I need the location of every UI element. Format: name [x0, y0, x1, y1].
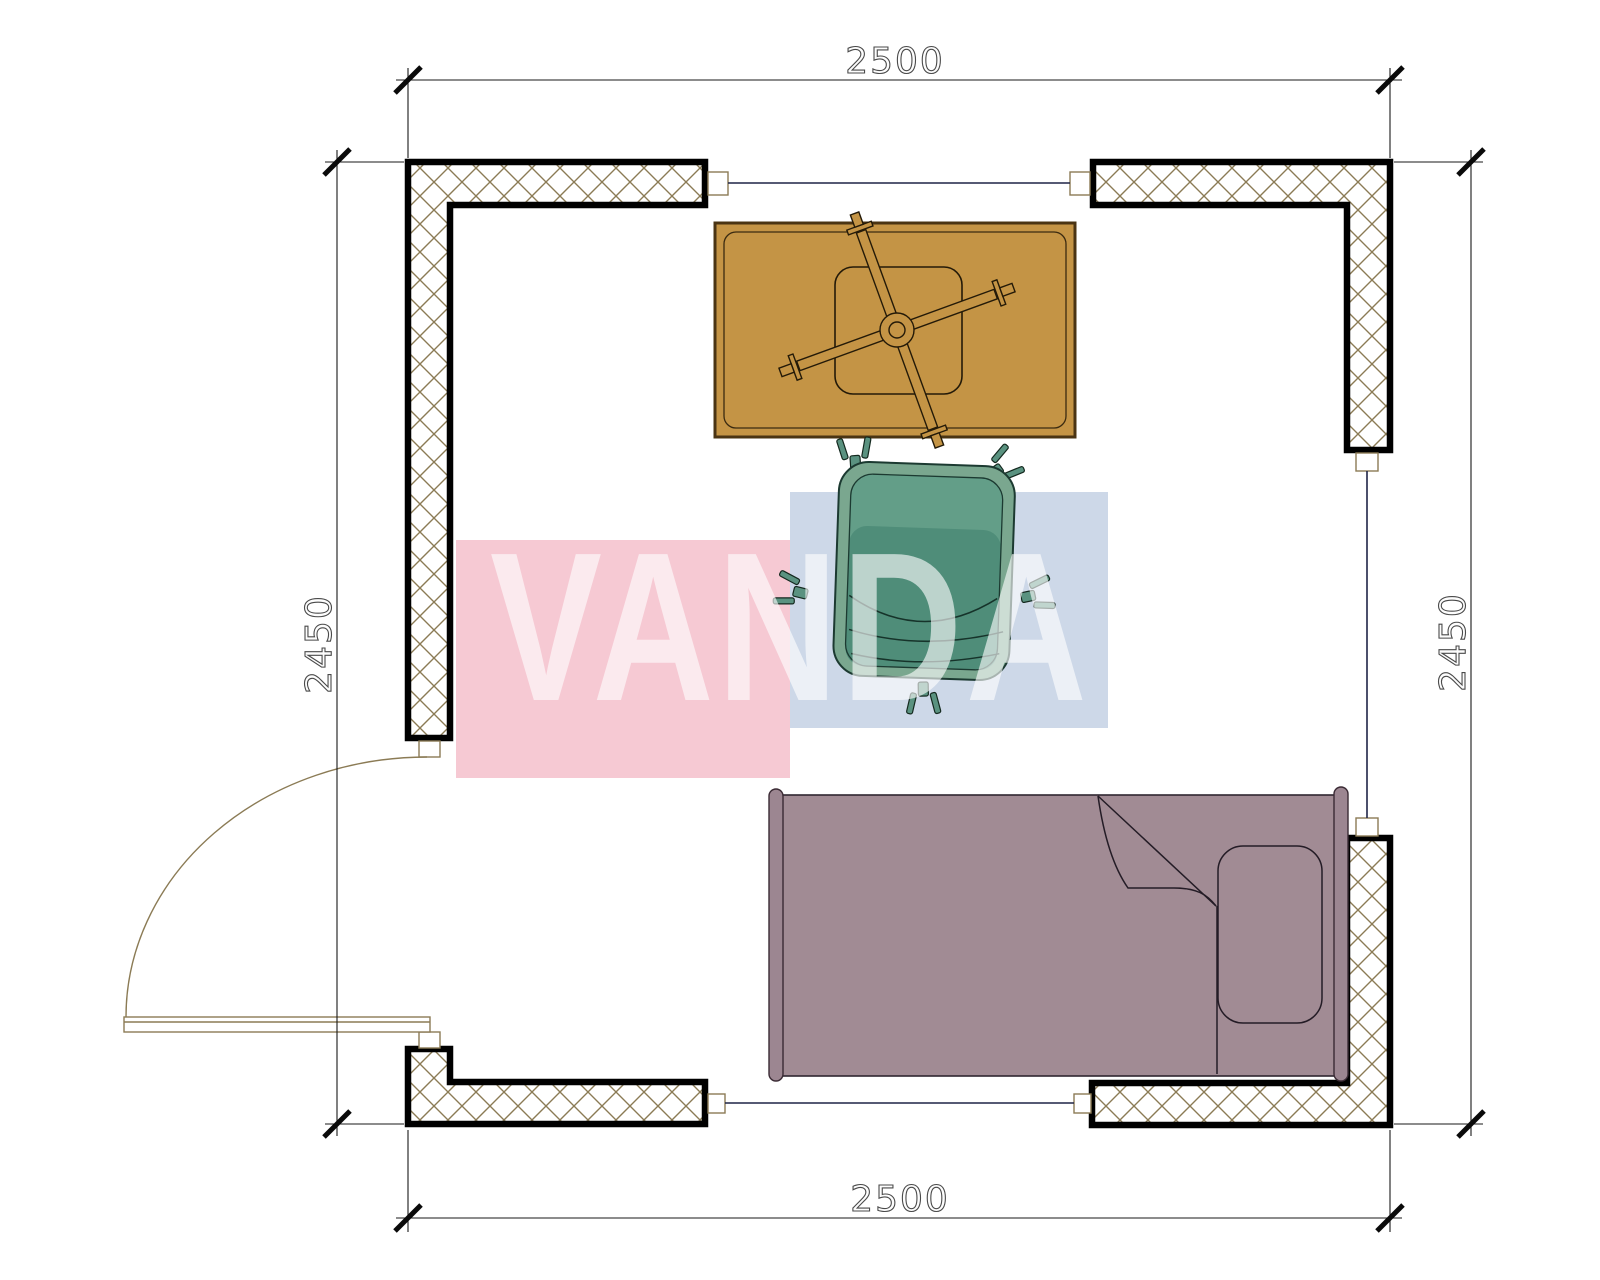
door-swing-arc	[126, 757, 427, 1017]
door-leaf	[124, 1017, 430, 1032]
wall-bottom-left	[408, 1049, 705, 1124]
door-jamb-top	[419, 741, 440, 757]
dimension-label-right: 2450	[1433, 592, 1474, 692]
dimension-label-top: 2500	[845, 41, 945, 82]
dimension-bottom: 2500	[395, 1130, 1403, 1232]
door-jamb-bottom	[419, 1032, 440, 1048]
floor-plan: VANDA 2500 2500 2450 2450	[0, 0, 1600, 1280]
dimension-top: 2500	[395, 41, 1403, 158]
dimension-left: 2450	[299, 149, 404, 1137]
bed	[769, 787, 1348, 1081]
window-jamb-right-top	[1356, 453, 1378, 471]
dimension-right: 2450	[1394, 149, 1484, 1137]
window-jamb-bottom-left	[708, 1094, 725, 1113]
bed-mattress	[777, 795, 1337, 1076]
wall-top-right	[1093, 162, 1390, 450]
window-jamb-bottom-right	[1074, 1094, 1091, 1113]
dimension-label-bottom: 2500	[850, 1179, 950, 1220]
window-jamb-top-left	[708, 172, 728, 195]
door	[124, 757, 430, 1032]
dimension-label-left: 2450	[299, 594, 340, 694]
window-jamb-top-right	[1070, 172, 1090, 195]
bed-headboard	[1334, 787, 1348, 1081]
floor-plan-drawing: VANDA 2500 2500 2450 2450	[0, 0, 1600, 1280]
window-jamb-right-bottom	[1356, 818, 1378, 836]
watermark-text: VANDA	[490, 508, 1090, 745]
bed-footboard	[769, 789, 783, 1081]
table	[715, 209, 1075, 451]
star-base-hub	[880, 313, 914, 347]
